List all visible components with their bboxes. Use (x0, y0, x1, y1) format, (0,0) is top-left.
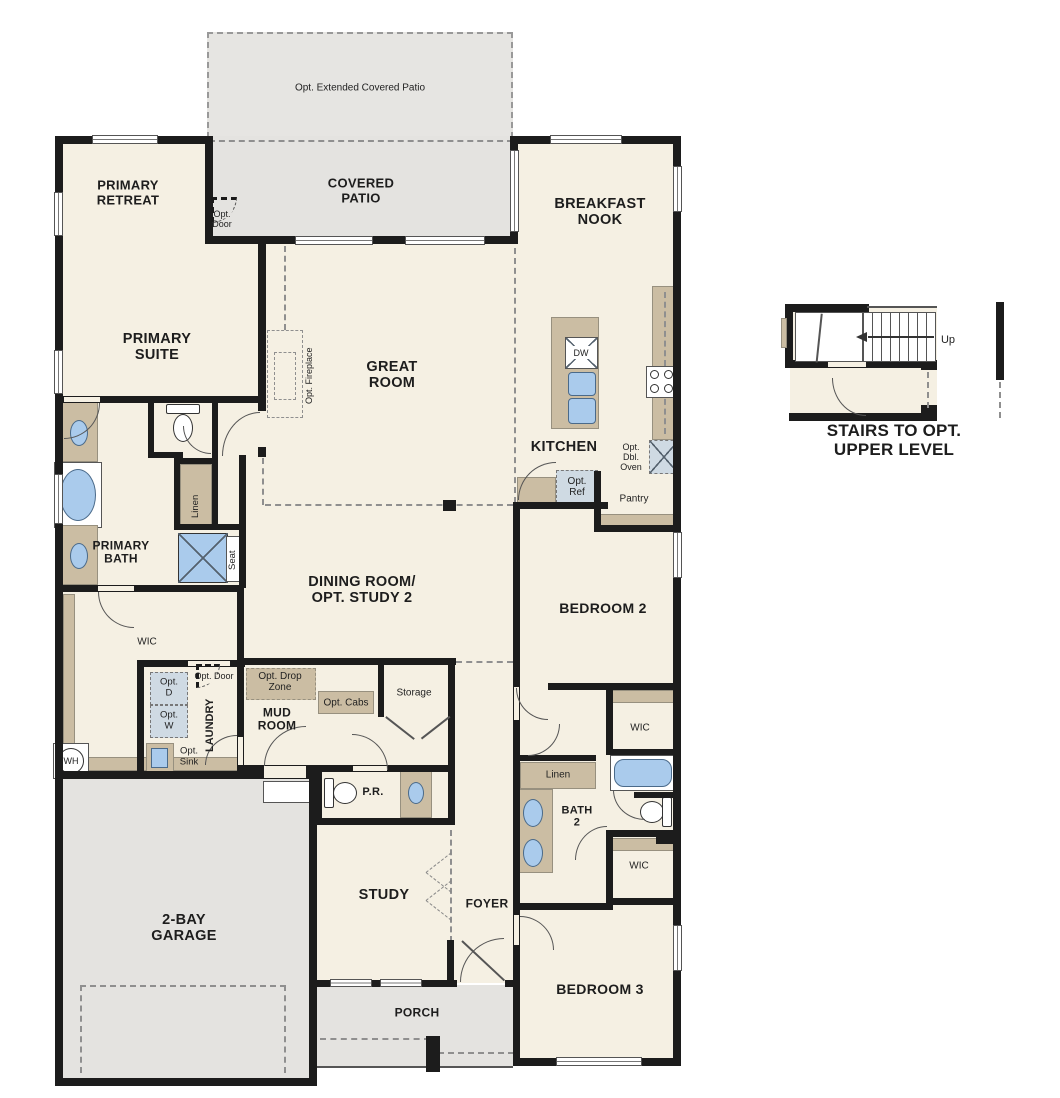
wall (505, 980, 513, 987)
dining-room-label: DINING ROOM/ OPT. STUDY 2 (308, 574, 416, 606)
laundry-label: LAUNDRY (204, 687, 216, 763)
porch-slab-edge (317, 1066, 513, 1068)
wall (378, 661, 384, 717)
wall (606, 830, 613, 905)
stairs-side-shelf (781, 318, 787, 348)
garage-label: 2-BAY GARAGE (151, 912, 216, 944)
opt-sink-label: Opt. Sink (180, 746, 198, 767)
door-opening (64, 397, 100, 402)
wic-bedroom3-label: WIC (629, 860, 648, 871)
door-opening (514, 915, 519, 945)
patio-slider (295, 236, 373, 245)
porch-label: PORCH (395, 1006, 440, 1019)
primary-tub-basin (60, 469, 96, 521)
primary-retreat-label: PRIMARY RETREAT (97, 178, 160, 207)
window (673, 532, 682, 578)
bedroom-3-label: BEDROOM 3 (556, 982, 644, 998)
opt-drop-zone-label: Opt. Drop Zone (258, 671, 301, 693)
counter-center-dashed (664, 292, 666, 434)
great-dining-dashed (265, 504, 513, 506)
wall (606, 898, 680, 905)
fireplace-approach-dashed (284, 246, 286, 330)
wic-shelf-left (63, 594, 75, 754)
opt-cabs-label: Opt. Cabs (323, 697, 368, 708)
storage-label: Storage (396, 687, 431, 698)
floor-plan: Opt. Extended Covered Patio COVERED PATI… (0, 0, 1060, 1098)
powder-room-label: P.R. (362, 786, 383, 798)
kitchen-great-dashed (514, 248, 516, 503)
window (54, 192, 63, 236)
patio-edge-dashed (209, 140, 513, 142)
pr-toilet-bowl (333, 782, 357, 804)
stairs-caption: STAIRS TO OPT. UPPER LEVEL (811, 421, 977, 459)
foyer-arch-dashed (450, 830, 452, 942)
opt-sink-basin (151, 748, 168, 768)
door-opening (238, 737, 243, 765)
wall (448, 658, 455, 824)
covered-patio-label: COVERED PATIO (328, 176, 394, 205)
pr-sink (408, 782, 424, 804)
burner-4 (664, 384, 673, 393)
window (673, 166, 682, 212)
bedroom-2-label: BEDROOM 2 (559, 601, 647, 617)
patio-slider (405, 236, 485, 245)
opt-washer-label: Opt. W (160, 710, 178, 731)
stairs-landing (795, 312, 863, 362)
opt-extended-patio-label: Opt. Extended Covered Patio (295, 82, 425, 93)
bath2-sink-2 (523, 839, 543, 867)
wall (594, 525, 680, 532)
wall (513, 903, 613, 910)
island-sink-2 (568, 398, 596, 424)
primary-toilet-tank (166, 404, 200, 414)
study-label: STUDY (359, 887, 410, 903)
wall (258, 241, 266, 411)
window (556, 1057, 642, 1066)
post (426, 1036, 440, 1072)
opt-dryer-label: Opt. D (160, 677, 178, 698)
hall-opening-dashed (456, 661, 513, 663)
garage-entry-landing (263, 781, 313, 803)
island-sink-1 (568, 372, 596, 396)
wall (447, 940, 454, 982)
wall (315, 765, 322, 825)
window (550, 135, 622, 144)
water-heater-label: WH (64, 756, 79, 766)
mud-room-label: MUD ROOM (258, 707, 297, 734)
porch-step-dashed-1 (320, 1038, 430, 1040)
porch-floor (317, 985, 513, 1068)
primary-shower-glass (178, 533, 228, 583)
wall (55, 1078, 317, 1086)
window (92, 135, 158, 144)
window (380, 979, 422, 987)
wic-primary-label: WIC (137, 636, 156, 647)
wic2-shelf (610, 690, 676, 703)
wall (606, 683, 613, 755)
wall (212, 400, 218, 530)
foyer-label: FOYER (466, 897, 509, 910)
porch-step-dashed-2 (438, 1052, 514, 1054)
seat-label: Seat (227, 537, 238, 583)
wall (240, 658, 456, 665)
wall (606, 749, 680, 755)
wall (785, 304, 869, 312)
kitchen-label: KITCHEN (531, 439, 598, 455)
wall (58, 585, 244, 592)
post (656, 830, 680, 844)
primary-sink-2 (70, 543, 88, 569)
bath2-toilet-tank (662, 797, 672, 827)
linen-bath2-label: Linen (546, 769, 570, 780)
wall (315, 818, 455, 825)
window (330, 979, 372, 987)
primary-suite-label: PRIMARY SUITE (123, 331, 191, 363)
bath2-tub (614, 759, 672, 787)
wall (239, 455, 246, 588)
door-opening (98, 586, 134, 591)
up-label: Up (941, 334, 955, 346)
bath2-sink-1 (523, 799, 543, 827)
great-room-label: GREAT ROOM (366, 359, 417, 391)
dining-left-dashed (262, 458, 264, 505)
window (673, 925, 682, 971)
burner-1 (650, 370, 659, 379)
up-arrow-shaft (868, 336, 934, 338)
burner-3 (650, 384, 659, 393)
opt-ref-label: Opt. Ref (568, 476, 587, 498)
dishwasher-label: DW (574, 348, 589, 358)
opt-fireplace-label: Opt. Fireplace (304, 336, 314, 416)
wall (148, 400, 154, 458)
post (443, 500, 456, 511)
opt-door-laundry-label: Opt. Door (194, 671, 233, 681)
wall (174, 458, 218, 464)
stairs-dashed-wall (927, 372, 929, 408)
wall (548, 683, 680, 690)
wall (996, 302, 1004, 380)
burner-2 (664, 370, 673, 379)
patio-door-window (510, 150, 519, 232)
primary-bath-label: PRIMARY BATH (93, 540, 150, 567)
pantry-label: Pantry (620, 493, 649, 504)
wall (174, 524, 240, 530)
garage-door-dashed (80, 985, 286, 1073)
wall (594, 471, 601, 532)
wall (513, 502, 520, 1065)
wic-bedroom2-label: WIC (630, 722, 649, 733)
window (54, 350, 63, 394)
wall (174, 458, 180, 530)
window (54, 474, 63, 524)
stairs-top-line (867, 306, 937, 308)
bath-2-label: BATH 2 (562, 805, 593, 830)
door-opening (264, 766, 306, 778)
opt-fireplace-inner (274, 352, 296, 400)
wall (137, 660, 144, 778)
opt-dbl-oven-label: Opt. Dbl. Oven (620, 442, 642, 472)
stairs-dashed-wall (999, 382, 1001, 418)
linen-primary-label: Linen (190, 481, 201, 531)
breakfast-nook-label: BREAKFAST NOOK (554, 196, 645, 228)
wall (55, 136, 63, 1086)
post (921, 405, 937, 421)
opt-door-patio-label: Opt. Door (212, 209, 232, 229)
up-arrow-head (856, 332, 867, 342)
